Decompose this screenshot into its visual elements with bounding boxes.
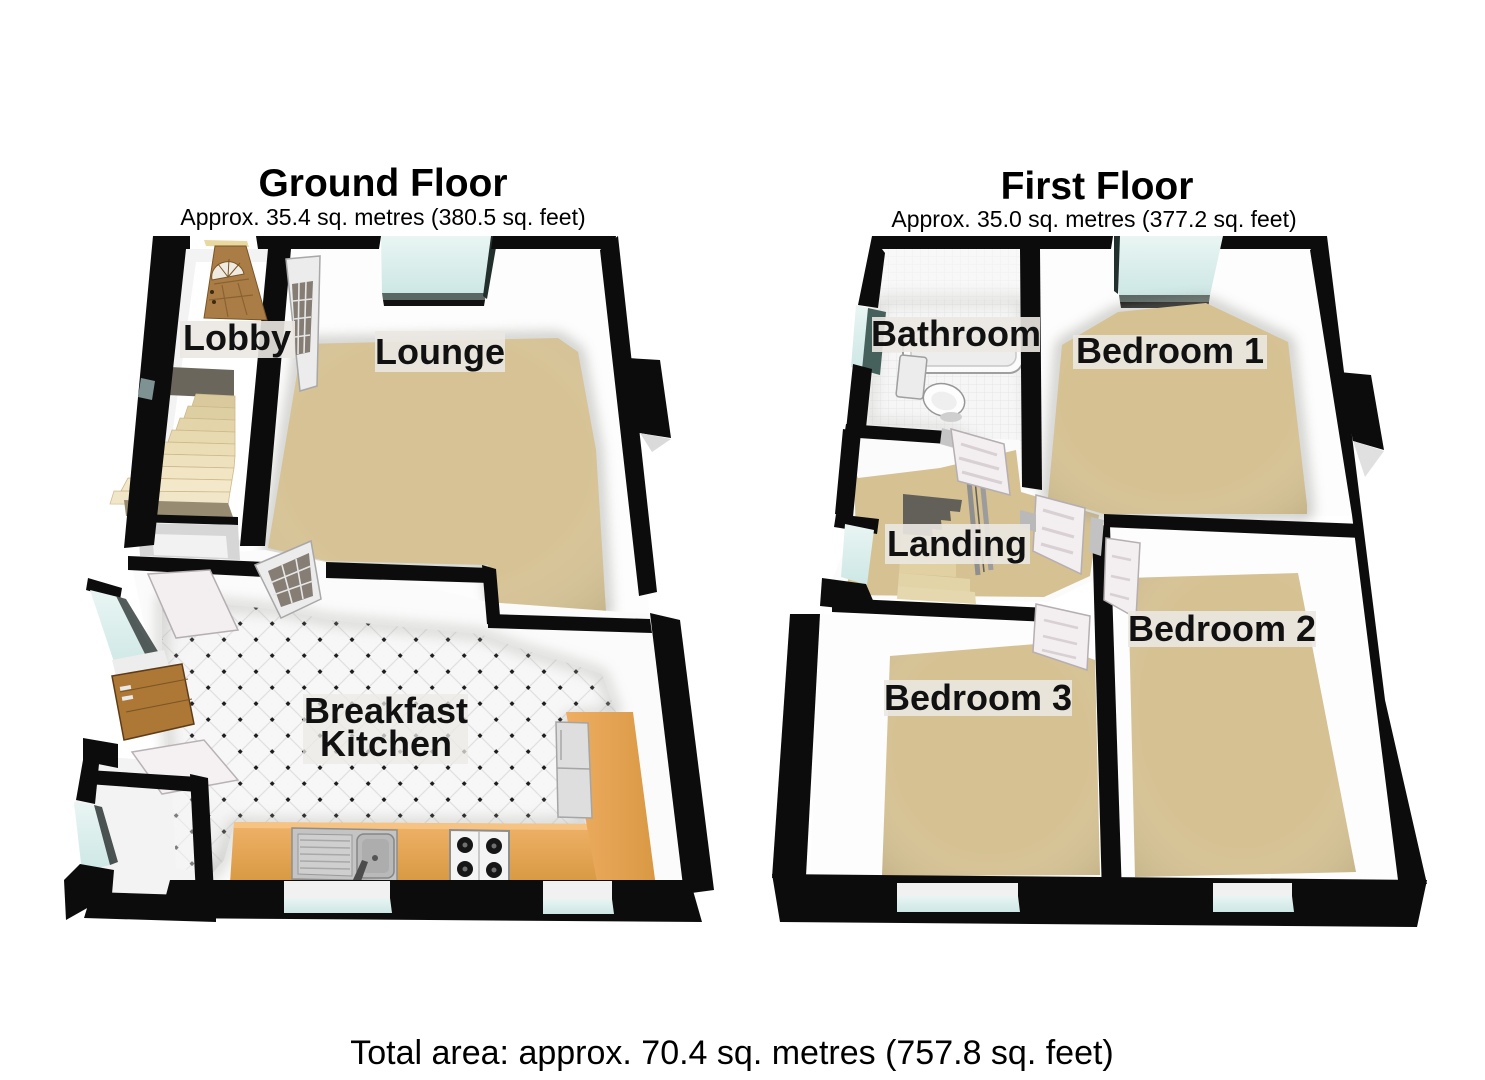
svg-text:Lounge: Lounge <box>375 331 505 372</box>
svg-text:Total area: approx. 70.4 sq. m: Total area: approx. 70.4 sq. metres (757… <box>350 1034 1114 1072</box>
svg-text:Kitchen: Kitchen <box>320 723 452 764</box>
svg-text:Bedroom 2: Bedroom 2 <box>1128 608 1316 649</box>
svg-text:Approx. 35.0 sq. metres (377.2: Approx. 35.0 sq. metres (377.2 sq. feet) <box>891 206 1296 232</box>
svg-text:First Floor: First Floor <box>1001 165 1194 208</box>
svg-text:Ground Floor: Ground Floor <box>258 162 507 205</box>
svg-text:Bedroom 1: Bedroom 1 <box>1076 330 1264 371</box>
svg-text:Bathroom: Bathroom <box>871 313 1041 354</box>
svg-text:Bedroom 3: Bedroom 3 <box>884 677 1072 718</box>
svg-text:Landing: Landing <box>887 523 1027 564</box>
svg-text:Lobby: Lobby <box>183 317 291 358</box>
svg-text:Approx. 35.4 sq. metres (380.5: Approx. 35.4 sq. metres (380.5 sq. feet) <box>180 204 585 230</box>
